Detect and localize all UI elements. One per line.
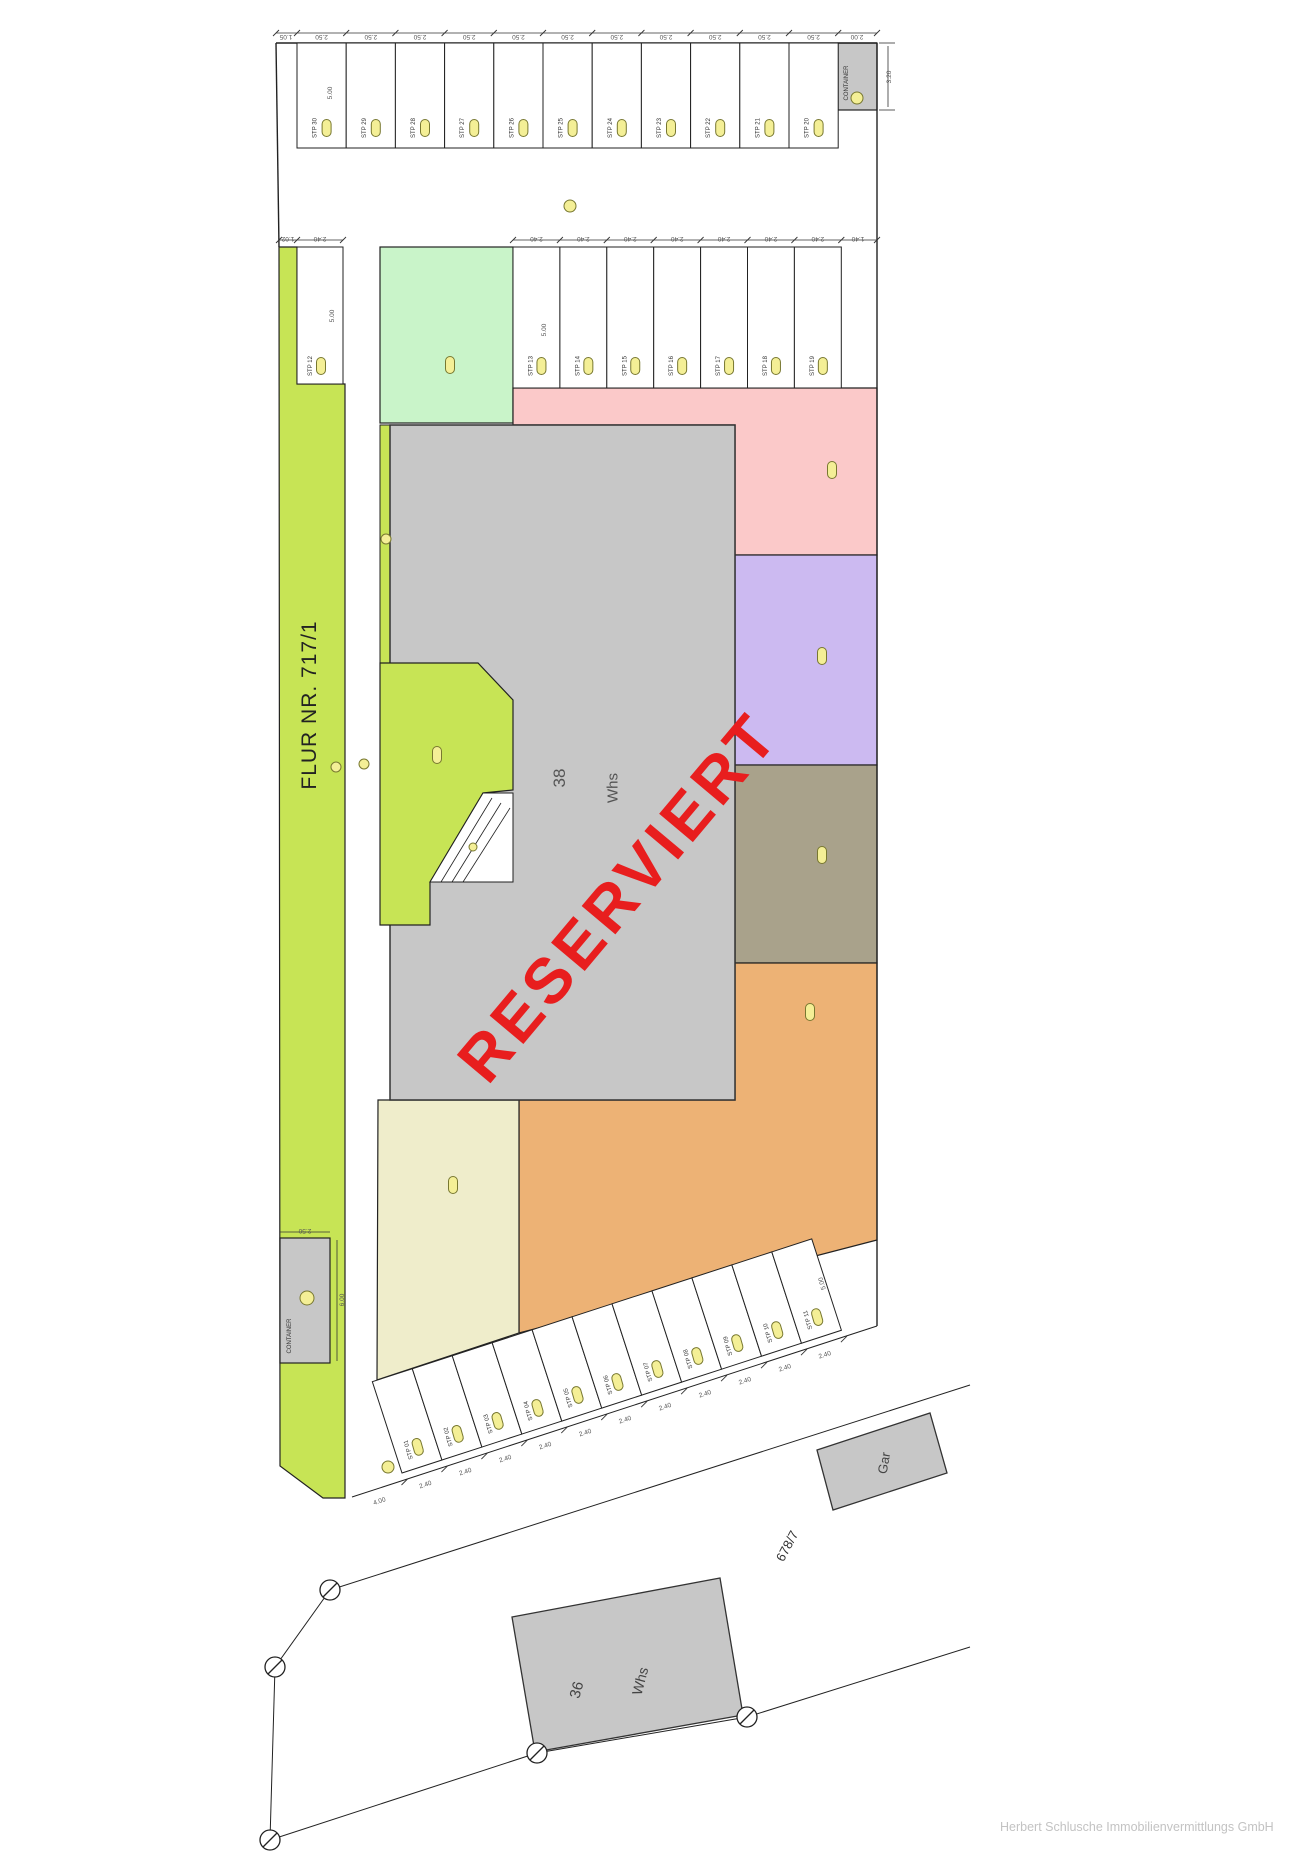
stall-badge bbox=[371, 120, 380, 137]
zone-badge-cream bbox=[449, 1177, 458, 1194]
dim-label: 2.50 bbox=[413, 33, 426, 40]
dim-label: 2.40 bbox=[698, 1389, 713, 1400]
dim-label: 2.40 bbox=[738, 1376, 753, 1387]
zone-badge-purple bbox=[818, 648, 827, 665]
footer-credit: Herbert Schlusche Immobilienvermittlungs… bbox=[1000, 1820, 1274, 1834]
dim-label: 2.50 bbox=[758, 33, 771, 40]
manhole-marker bbox=[564, 200, 576, 212]
dim-label: 2.40 bbox=[717, 235, 730, 242]
stall-STP 24 bbox=[592, 43, 641, 148]
dim-label: 5.00 bbox=[541, 323, 548, 336]
building-38-type: Whs bbox=[605, 773, 622, 803]
stall-label: STP 24 bbox=[608, 117, 614, 138]
stall-STP 28 bbox=[395, 43, 444, 148]
dim-label: 2.40 bbox=[618, 1415, 633, 1426]
parcel-boundary bbox=[270, 1590, 330, 1840]
stall-badge bbox=[617, 120, 626, 137]
stall-label: STP 12 bbox=[308, 355, 314, 376]
stall-badge bbox=[421, 120, 430, 137]
manhole-marker bbox=[382, 1461, 394, 1473]
stall-badge bbox=[725, 358, 734, 375]
dim-label: 2.40 bbox=[530, 235, 543, 242]
stall-badge bbox=[568, 120, 577, 137]
stall-STP 22 bbox=[691, 43, 740, 148]
stall-STP 29 bbox=[346, 43, 395, 148]
stall-label: STP 26 bbox=[509, 117, 515, 138]
manhole-marker bbox=[381, 534, 391, 544]
flur-strip-label: FLUR NR. 717/1 bbox=[298, 620, 322, 789]
dim-label: 5.00 bbox=[329, 309, 336, 322]
stall-label: STP 28 bbox=[411, 117, 417, 138]
dim-label: 1.05 bbox=[279, 33, 292, 40]
stall-STP 30 bbox=[297, 43, 346, 148]
zone-badge-mint bbox=[446, 357, 455, 374]
manhole-marker bbox=[359, 759, 369, 769]
stall-label: STP 20 bbox=[805, 117, 811, 138]
dim-label: 2.50 bbox=[298, 1227, 311, 1234]
stall-label: STP 17 bbox=[716, 355, 722, 376]
boundary-left bbox=[276, 43, 279, 247]
stall-badge bbox=[667, 120, 676, 137]
dim-label: 2.50 bbox=[561, 33, 574, 40]
dim-label: 2.40 bbox=[498, 1454, 513, 1465]
stall-label: STP 14 bbox=[575, 355, 581, 376]
building-36-whs bbox=[512, 1578, 743, 1752]
stall-badge bbox=[818, 358, 827, 375]
stall-badge bbox=[771, 358, 780, 375]
stall-label: STP 21 bbox=[755, 117, 761, 138]
stall-STP 21 bbox=[740, 43, 789, 148]
dim-label: 2.50 bbox=[807, 33, 820, 40]
zone-badge-orange bbox=[806, 1004, 815, 1021]
container-top-marker bbox=[851, 92, 863, 104]
stall-STP 26 bbox=[494, 43, 543, 148]
dim-label: 2.50 bbox=[512, 33, 525, 40]
dim-label: 2.40 bbox=[670, 235, 683, 242]
site-plan: 2.50STP 302.50STP 292.50STP 282.50STP 27… bbox=[0, 0, 1300, 1852]
dim-label: 2.50 bbox=[708, 33, 721, 40]
zone-olive bbox=[735, 765, 877, 963]
stall-badge bbox=[537, 358, 546, 375]
dim-label: 2.40 bbox=[577, 235, 590, 242]
dim-label: 2.00 bbox=[850, 33, 863, 40]
dim-label: 2.40 bbox=[418, 1480, 433, 1491]
manhole-marker bbox=[469, 843, 477, 851]
stall-STP 25 bbox=[543, 43, 592, 148]
plan-drawing: 2.50STP 302.50STP 292.50STP 282.50STP 27… bbox=[0, 0, 1300, 1852]
stall-STP 20 bbox=[789, 43, 838, 148]
zone-cream bbox=[377, 1100, 519, 1380]
container-left-marker bbox=[300, 1291, 314, 1305]
stall-badge bbox=[678, 358, 687, 375]
container-left-label: CONTAINER bbox=[287, 1319, 293, 1354]
stall-STP 27 bbox=[445, 43, 494, 148]
stall-label: STP 27 bbox=[460, 117, 466, 138]
dim-label: 2.40 bbox=[658, 1402, 673, 1413]
stall-label: STP 18 bbox=[763, 355, 769, 376]
dim-label: 2.40 bbox=[778, 1363, 793, 1374]
dim-label: 2.40 bbox=[538, 1441, 553, 1452]
stall-badge bbox=[716, 120, 725, 137]
stall-badge bbox=[631, 358, 640, 375]
container-top-label: CONTAINER bbox=[844, 66, 850, 101]
dim-label: 3.20 bbox=[886, 70, 893, 83]
stall-badge bbox=[322, 120, 331, 137]
zone-mint bbox=[380, 247, 513, 423]
stall-label: STP 19 bbox=[810, 355, 816, 376]
zone-badge-olive bbox=[818, 847, 827, 864]
dim-label: 4.00 bbox=[372, 1496, 387, 1507]
stall-badge bbox=[584, 358, 593, 375]
dim-label: 2.40 bbox=[458, 1467, 473, 1478]
stall-badge bbox=[765, 120, 774, 137]
dim-label: 2.50 bbox=[462, 33, 475, 40]
dim-label: 2.40 bbox=[764, 235, 777, 242]
stall-label: STP 16 bbox=[669, 355, 675, 376]
stall-label: STP 23 bbox=[657, 117, 663, 138]
stall-label: STP 25 bbox=[559, 117, 565, 138]
stall-label: STP 15 bbox=[622, 355, 628, 376]
dim-label: 6.00 bbox=[339, 1293, 346, 1306]
zone-badge-playground bbox=[433, 747, 442, 764]
stall-label: STP 13 bbox=[528, 355, 534, 376]
dim-label: 1.40 bbox=[851, 235, 864, 242]
dim-label: 2.40 bbox=[818, 1350, 833, 1361]
dim-label: 2.40 bbox=[578, 1428, 593, 1439]
stall-label: STP 30 bbox=[313, 117, 319, 138]
building-38-number: 38 bbox=[550, 769, 570, 788]
stall-badge bbox=[470, 120, 479, 137]
dim-label: 2.50 bbox=[610, 33, 623, 40]
dim-label: 2.50 bbox=[659, 33, 672, 40]
zone-badge-pink bbox=[828, 462, 837, 479]
dim-label: 2.40 bbox=[624, 235, 637, 242]
stall-label: STP 29 bbox=[362, 117, 368, 138]
stall-badge bbox=[519, 120, 528, 137]
stall-badge bbox=[814, 120, 823, 137]
dim-label: 5.00 bbox=[327, 86, 334, 99]
stall-badge bbox=[317, 358, 326, 375]
dim-label: 2.40 bbox=[811, 235, 824, 242]
dim-label: 2.50 bbox=[315, 33, 328, 40]
dim-label: 2.50 bbox=[364, 33, 377, 40]
dim-label: 2.40 bbox=[313, 235, 326, 242]
manhole-marker bbox=[331, 762, 341, 772]
stall-STP 23 bbox=[641, 43, 690, 148]
stall-label: STP 22 bbox=[706, 117, 712, 138]
dim-label: 1.02 bbox=[281, 235, 294, 242]
